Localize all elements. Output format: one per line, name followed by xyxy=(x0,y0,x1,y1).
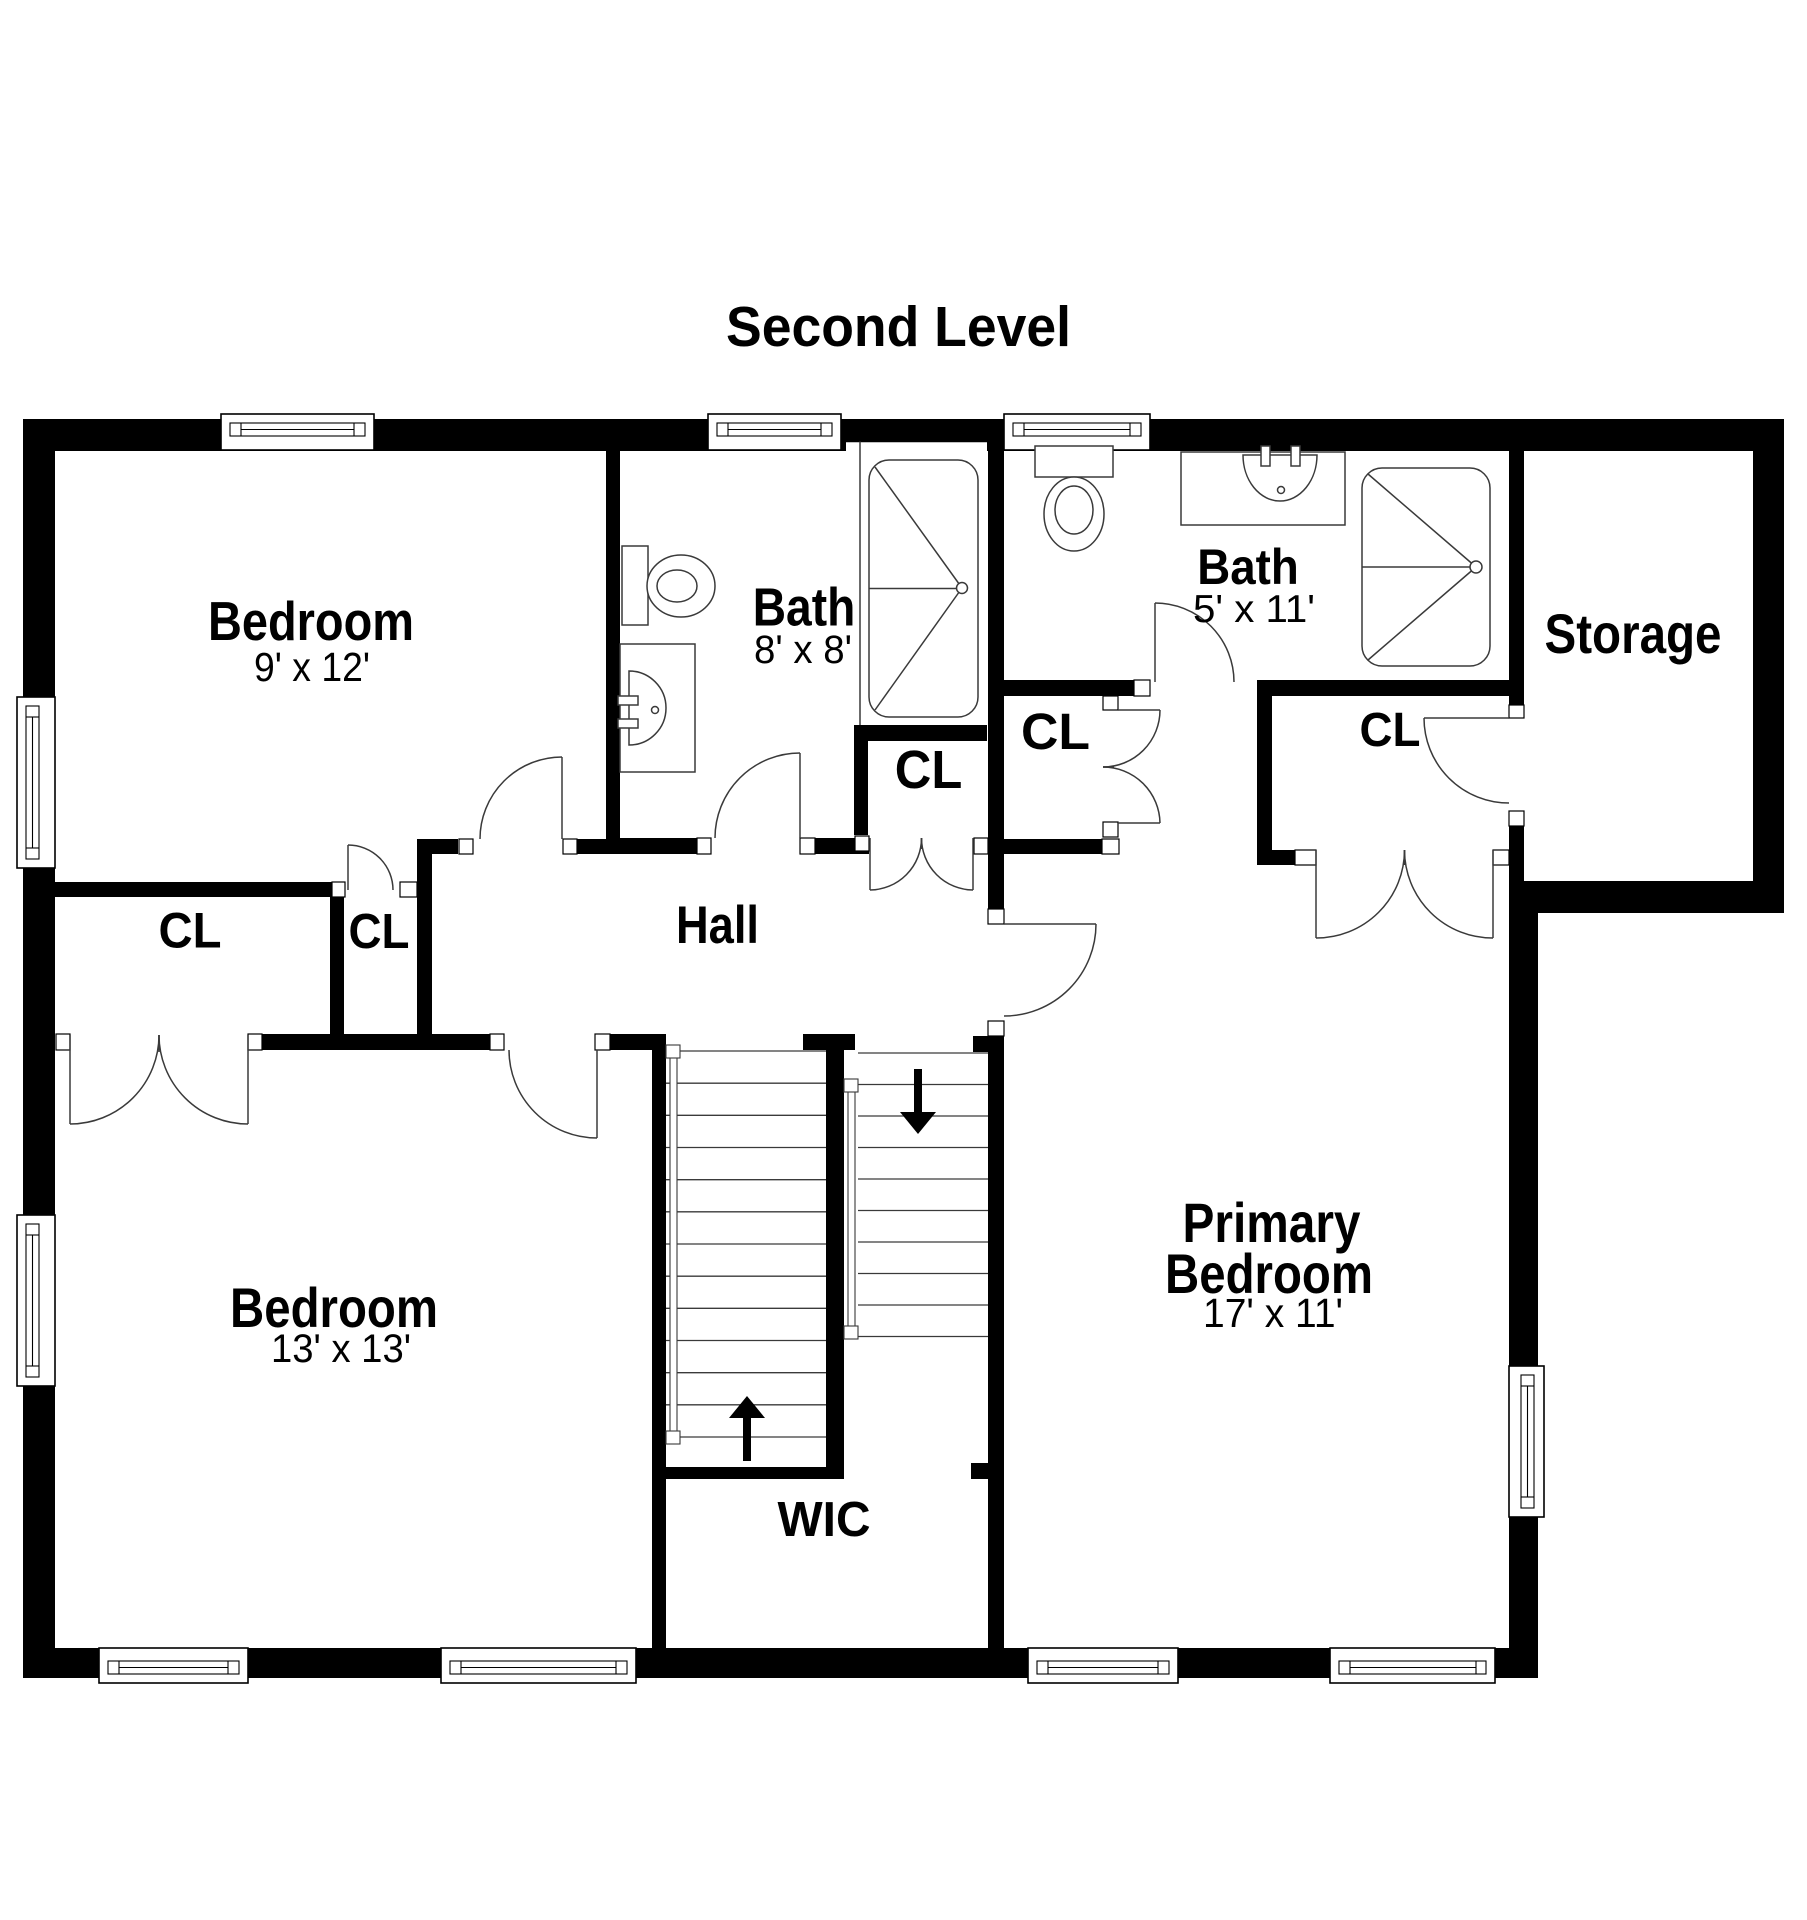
svg-text:Second Level: Second Level xyxy=(726,295,1071,359)
svg-text:WIC: WIC xyxy=(778,1493,871,1547)
svg-text:8' x 8': 8' x 8' xyxy=(754,628,852,672)
svg-text:Storage: Storage xyxy=(1545,602,1722,665)
svg-text:9' x 12': 9' x 12' xyxy=(254,644,370,690)
svg-text:CL: CL xyxy=(895,740,963,800)
svg-text:13' x 13': 13' x 13' xyxy=(271,1327,411,1371)
svg-text:Hall: Hall xyxy=(676,896,759,955)
svg-text:CL: CL xyxy=(1021,703,1090,760)
svg-text:5' x 11': 5' x 11' xyxy=(1193,588,1315,631)
svg-text:CL: CL xyxy=(349,905,410,959)
svg-text:17' x 11': 17' x 11' xyxy=(1203,1290,1343,1336)
svg-text:Bedroom: Bedroom xyxy=(208,590,414,652)
svg-text:CL: CL xyxy=(1360,704,1421,757)
svg-text:Bath: Bath xyxy=(1197,539,1299,595)
svg-text:CL: CL xyxy=(159,903,222,959)
